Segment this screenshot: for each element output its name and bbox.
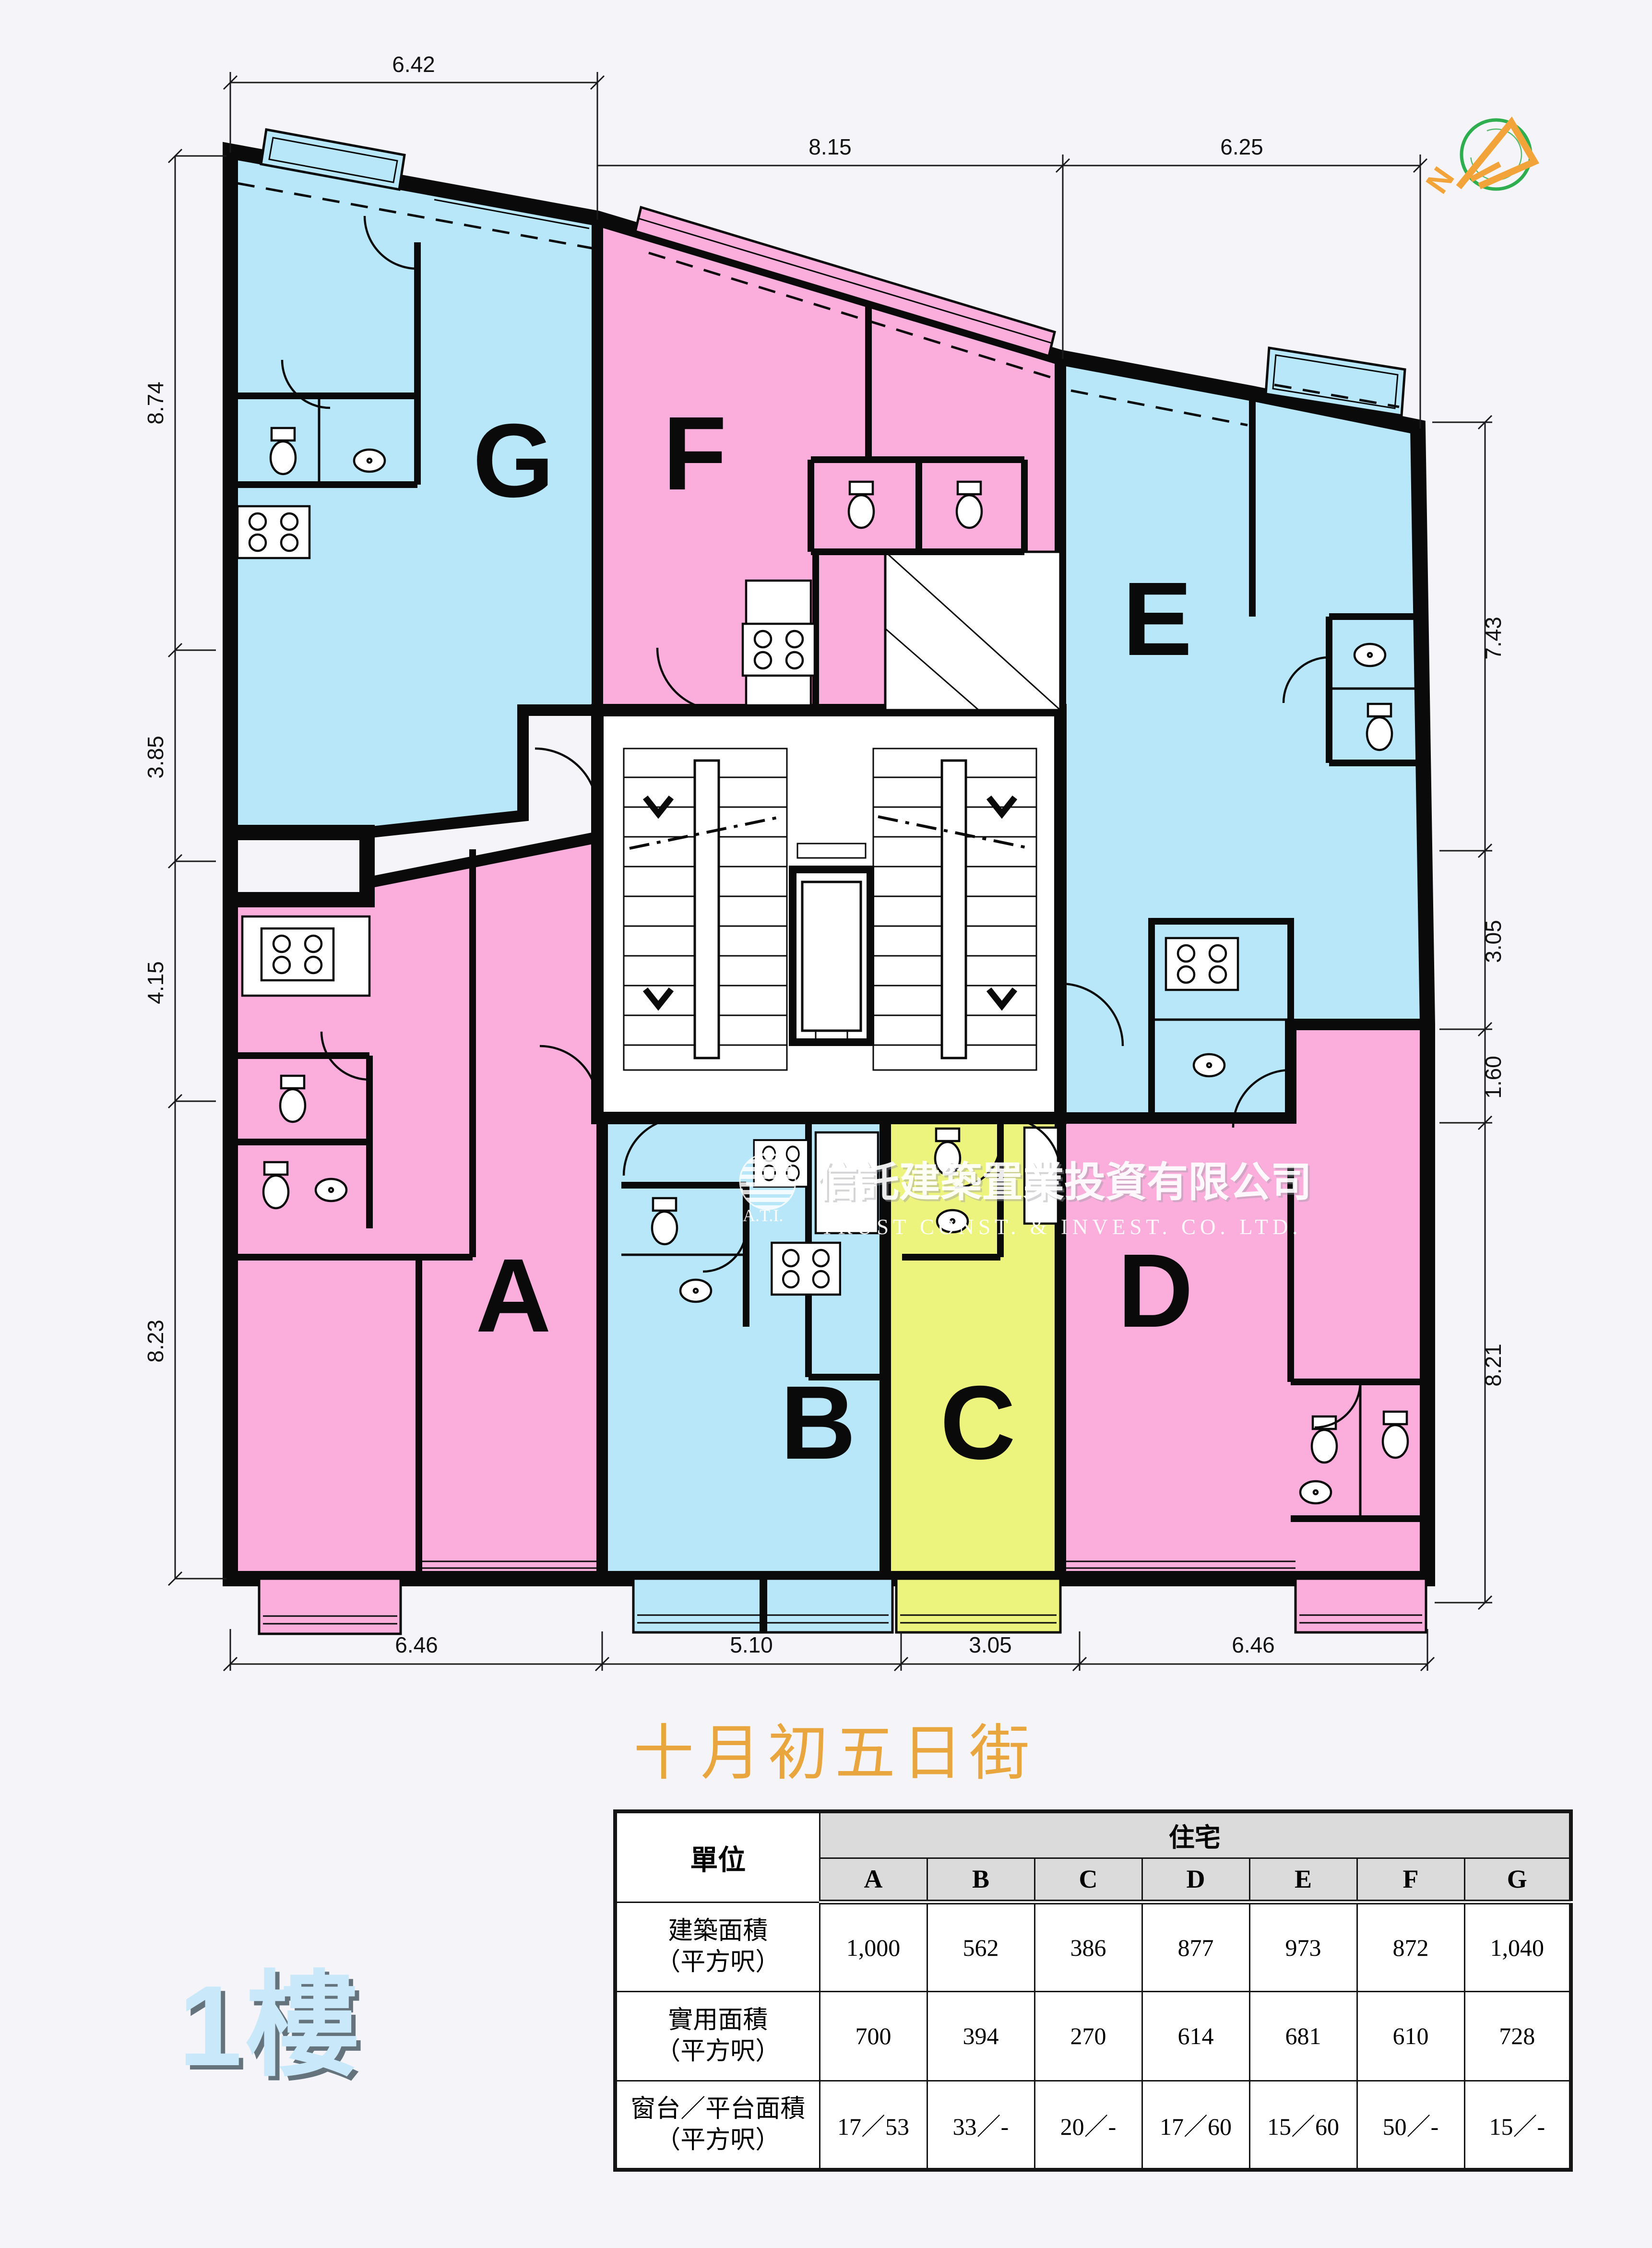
unit-label-A: A xyxy=(475,1237,551,1354)
dim-right-4: 8.21 xyxy=(1481,1344,1506,1387)
table-col-F: F xyxy=(1357,1858,1464,1902)
table-cell: 270 xyxy=(1034,1991,1142,2081)
unit-label-G: G xyxy=(473,403,554,519)
elevator xyxy=(793,844,870,1042)
unit-area-table: 單位 住宅 A B C D E F G 建築面積（平方呎） 1,000 562 … xyxy=(613,1809,1573,2172)
table-cell: 20／- xyxy=(1034,2081,1142,2170)
dim-top-1: 8.15 xyxy=(808,134,852,159)
floor-plan-svg: G F E A B C D 6.42 8.15 6.25 8 xyxy=(0,0,1652,1785)
dim-bottom-4: 6.46 xyxy=(1232,1632,1275,1657)
balcony-A xyxy=(259,1579,401,1634)
dim-bottom-3: 3.05 xyxy=(969,1632,1012,1657)
unit-label-F: F xyxy=(663,395,726,512)
table-col-D: D xyxy=(1142,1858,1249,1902)
table-cell: 872 xyxy=(1357,1902,1464,1991)
table-row-label-gross: 建築面積（平方呎） xyxy=(615,1902,820,1991)
table-col-B: B xyxy=(927,1858,1034,1902)
dim-left-4: 8.23 xyxy=(143,1320,168,1363)
table-col-E: E xyxy=(1249,1858,1357,1902)
table-header-group: 住宅 xyxy=(820,1811,1571,1858)
table-header-unit: 單位 xyxy=(615,1811,820,1902)
table-col-A: A xyxy=(820,1858,927,1902)
dim-right-1: 7.43 xyxy=(1481,617,1506,660)
table-row-label-saleable: 實用面積（平方呎） xyxy=(615,1991,820,2081)
table-col-C: C xyxy=(1034,1858,1142,1902)
north-letter: N xyxy=(1419,161,1461,200)
table-cell: 50／- xyxy=(1357,2081,1464,2170)
table-row-label-baywindow: 窗台／平台面積（平方呎） xyxy=(615,2081,820,2170)
dim-left-3: 4.15 xyxy=(143,961,168,1004)
page: G F E A B C D 6.42 8.15 6.25 8 xyxy=(0,0,1652,2248)
balcony-D xyxy=(1295,1579,1426,1632)
table-cell: 1,000 xyxy=(820,1902,927,1991)
table-cell: 700 xyxy=(820,1991,927,2081)
watermark-logo-text: A.T.I. xyxy=(743,1206,783,1225)
dim-left-2: 3.85 xyxy=(143,736,168,779)
north-arrow-icon: N xyxy=(1419,120,1534,200)
watermark-line-en: TRUST CONST. & INVEST. CO. LTD. xyxy=(820,1215,1302,1239)
table-cell: 394 xyxy=(927,1991,1034,2081)
dim-top-2: 6.25 xyxy=(1220,134,1263,159)
watermark-line-cn: 信託建築置業投資有限公司 xyxy=(817,1159,1312,1205)
table-cell: 614 xyxy=(1142,1991,1249,2081)
table-cell: 33／- xyxy=(927,2081,1034,2170)
table-cell: 386 xyxy=(1034,1902,1142,1991)
unit-label-D: D xyxy=(1117,1233,1193,1349)
table-cell: 877 xyxy=(1142,1902,1249,1991)
dim-right-2: 3.05 xyxy=(1481,920,1506,963)
dim-bottom-1: 6.46 xyxy=(395,1632,438,1657)
table-cell: 973 xyxy=(1249,1902,1357,1991)
floor-label: 1樓 xyxy=(178,1933,362,2098)
table-cell: 17／60 xyxy=(1142,2081,1249,2170)
dim-left-1: 8.74 xyxy=(143,381,168,425)
table-cell: 681 xyxy=(1249,1991,1357,2081)
table-cell: 562 xyxy=(927,1902,1034,1991)
table-cell: 728 xyxy=(1464,1991,1571,2081)
street-name-label: 十月初五日街 xyxy=(566,1704,1104,1792)
watermark: A.T.I. 信託建築置業投資有限公司 信託建築置業投資有限公司 TRUST C… xyxy=(740,1154,1314,1239)
dim-top-left: 6.42 xyxy=(392,52,435,77)
unit-label-E: E xyxy=(1122,561,1192,678)
dim-right-3: 1.60 xyxy=(1481,1056,1506,1099)
table-cell: 1,040 xyxy=(1464,1902,1571,1991)
table-cell: 610 xyxy=(1357,1991,1464,2081)
unit-label-C: C xyxy=(940,1365,1015,1481)
table-cell: 17／53 xyxy=(820,2081,927,2170)
unit-label-B: B xyxy=(780,1365,856,1481)
table-col-G: G xyxy=(1464,1858,1571,1902)
balcony-C xyxy=(896,1579,1060,1632)
dim-bottom-2: 5.10 xyxy=(730,1632,773,1657)
table-cell: 15／- xyxy=(1464,2081,1571,2170)
table-cell: 15／60 xyxy=(1249,2081,1357,2170)
